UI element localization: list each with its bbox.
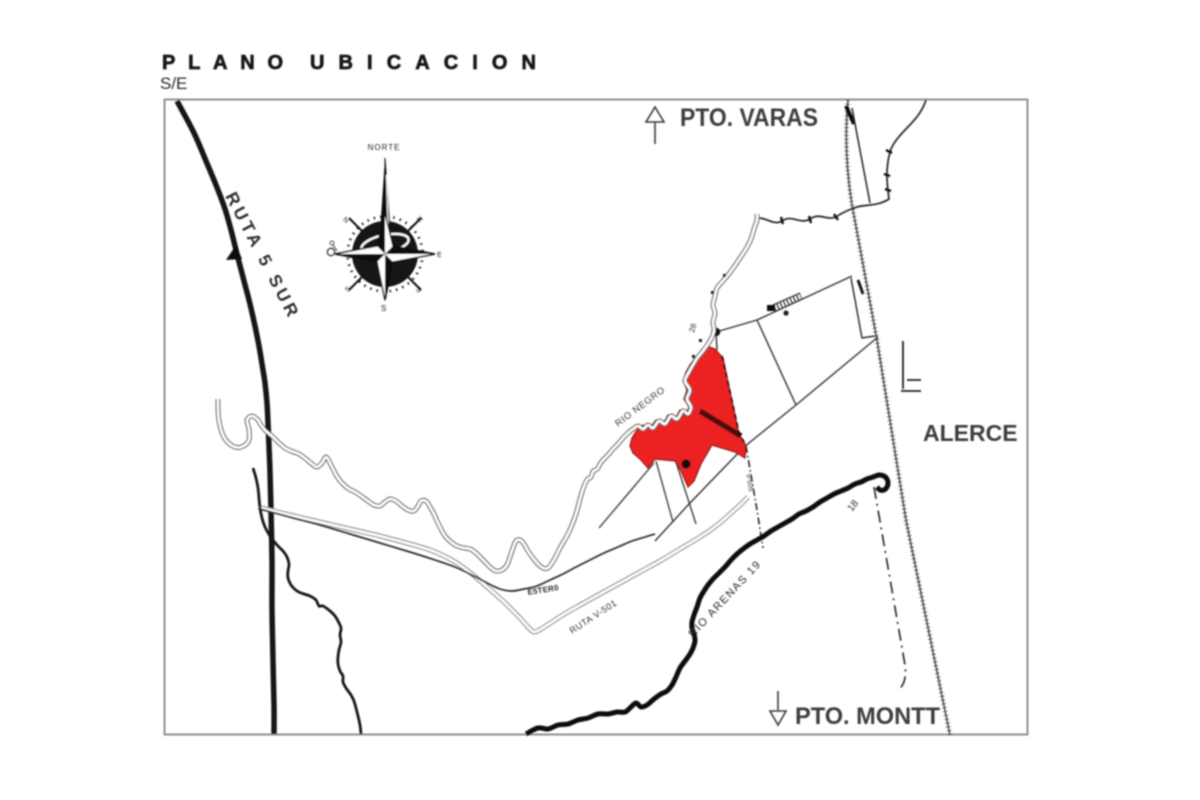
- svg-text:N: N: [341, 216, 350, 225]
- svg-text:NORTE: NORTE: [368, 143, 401, 152]
- svg-text:ALERCE: ALERCE: [923, 420, 1018, 446]
- svg-text:S: S: [414, 286, 422, 294]
- svg-text:RUTA V-501: RUTA V-501: [568, 598, 619, 636]
- svg-text:UBICACION: UBICACION: [310, 52, 536, 74]
- svg-text:V-505: V-505: [744, 473, 754, 492]
- svg-text:S: S: [381, 304, 386, 313]
- svg-text:PTO. MONTT: PTO. MONTT: [795, 703, 940, 730]
- svg-text:S/E: S/E: [160, 74, 187, 93]
- svg-text:PTO. VARAS: PTO. VARAS: [680, 104, 818, 132]
- svg-text:PLANO: PLANO: [162, 52, 283, 74]
- svg-text:E5TER0: E5TER0: [527, 583, 560, 597]
- svg-text:28: 28: [687, 322, 698, 334]
- svg-text:E: E: [437, 252, 442, 259]
- svg-text:18: 18: [846, 498, 862, 514]
